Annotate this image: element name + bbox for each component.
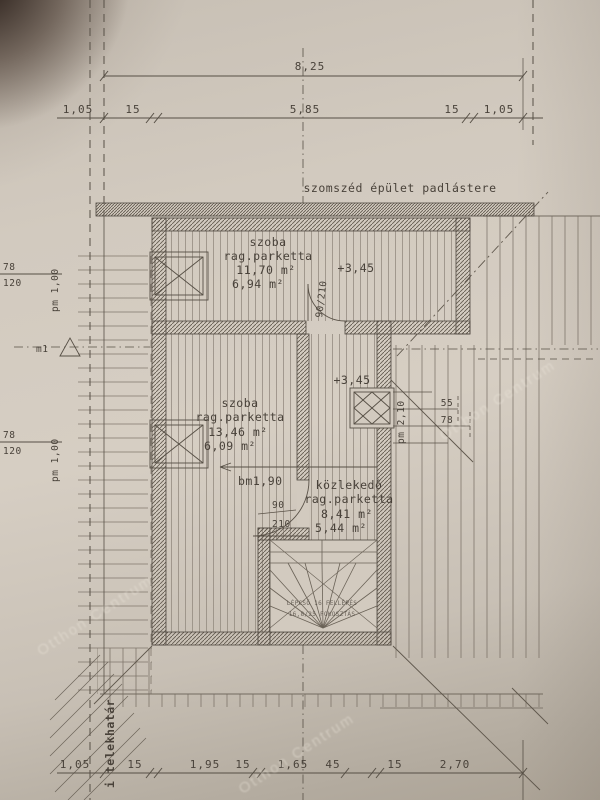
corridor-name: közlekedő bbox=[316, 478, 383, 492]
dim-top-1: 15 bbox=[125, 103, 140, 116]
floor-plan-photo: 8,25 1,05 15 5,85 15 1,05 szomszéd épüle… bbox=[0, 0, 600, 800]
dim-bot-2: 1,95 bbox=[190, 758, 221, 771]
room-mid-name: szoba bbox=[221, 396, 258, 410]
corridor-net: 5,44 m² bbox=[315, 521, 367, 535]
level-top: +3,45 bbox=[337, 261, 374, 275]
corridor-floor: rag.parketta bbox=[304, 492, 393, 506]
level-corridor: +3,45 bbox=[333, 373, 370, 387]
room-mid-gross: 13,46 m² bbox=[208, 425, 267, 439]
room-top-name: szoba bbox=[249, 235, 286, 249]
win2-sill: pm 1,00 bbox=[50, 438, 61, 482]
room-top-floor: rag.parketta bbox=[223, 249, 312, 263]
dim-top-0: 1,05 bbox=[63, 103, 94, 116]
room-top-net: 6,94 m² bbox=[232, 277, 284, 291]
win1-sill: pm 1,00 bbox=[50, 268, 61, 312]
stair-note-2: 16,8/25 FOKOSZTÁS bbox=[289, 611, 356, 618]
room-mid-floor: rag.parketta bbox=[195, 410, 284, 424]
win1-width: 78 bbox=[3, 262, 15, 273]
chimney bbox=[350, 388, 394, 428]
dim-bot-7: 2,70 bbox=[440, 758, 471, 771]
room-top-gross: 11,70 m² bbox=[236, 263, 295, 277]
neighbor-wall bbox=[96, 203, 534, 216]
dim-bot-5: 45 bbox=[325, 758, 340, 771]
room-mid-net: 6,09 m² bbox=[204, 439, 256, 453]
headroom-label: bm1,90 bbox=[238, 474, 283, 488]
dim-top-2: 5,85 bbox=[290, 103, 321, 116]
neighbor-label: szomszéd épület padlástere bbox=[303, 181, 496, 195]
dim-bot-0: 1,05 bbox=[60, 758, 91, 771]
win2-height: 120 bbox=[3, 446, 22, 457]
dim-total: 8,25 bbox=[295, 60, 326, 73]
boundary-label: i telekhatár bbox=[103, 699, 117, 788]
dim-bot-1: 15 bbox=[127, 758, 142, 771]
win1-height: 120 bbox=[3, 278, 22, 289]
door-mid-width: 90 bbox=[272, 500, 284, 511]
staircase bbox=[270, 540, 377, 632]
dim-bot-3: 15 bbox=[235, 758, 250, 771]
dim-top-4: 1,05 bbox=[484, 103, 515, 116]
stair-note-1: LÉPCSŐ 16 FELLÉPÉS bbox=[287, 599, 358, 607]
roof-win-a: 55 bbox=[441, 398, 453, 409]
floorplan-svg: 8,25 1,05 15 5,85 15 1,05 szomszéd épüle… bbox=[0, 0, 600, 800]
section-label: m1 bbox=[36, 344, 48, 355]
door-right-label: pm 2,10 bbox=[396, 400, 407, 444]
dim-top-3: 15 bbox=[444, 103, 459, 116]
dim-bot-6: 15 bbox=[387, 758, 402, 771]
door-mid-height: 210 bbox=[272, 519, 291, 530]
win2-width: 78 bbox=[3, 430, 15, 441]
watermark-2: Otthon Centrum bbox=[235, 710, 357, 798]
corridor-gross: 8,41 m² bbox=[321, 507, 373, 521]
